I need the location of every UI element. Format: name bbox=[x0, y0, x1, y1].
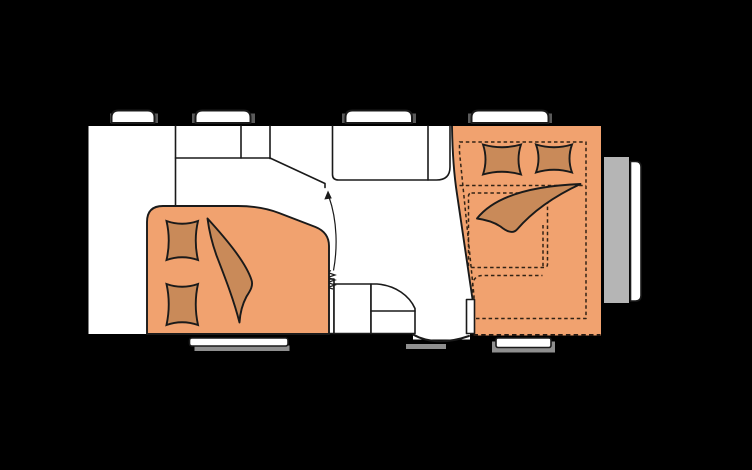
window-pane bbox=[472, 111, 549, 124]
window-pane bbox=[346, 111, 413, 124]
pillow bbox=[536, 145, 572, 173]
window-pane bbox=[112, 111, 155, 124]
window-bottom-front bbox=[492, 338, 555, 353]
door-step-shadow bbox=[406, 344, 446, 349]
window-pane bbox=[196, 111, 251, 124]
washroom-cabinet bbox=[334, 284, 371, 334]
pillow bbox=[167, 221, 199, 260]
pillow bbox=[167, 284, 199, 325]
front-bumper bbox=[631, 162, 642, 302]
window-top-4 bbox=[468, 111, 552, 124]
window-pane bbox=[496, 338, 551, 348]
window-top-2 bbox=[192, 111, 255, 124]
floorplan-svg bbox=[0, 0, 752, 470]
french-bed-rear bbox=[147, 206, 329, 334]
window-top-3 bbox=[342, 111, 416, 124]
front-storage-panel bbox=[604, 157, 629, 303]
window-top-1 bbox=[110, 111, 158, 124]
window-pane bbox=[190, 338, 289, 346]
window-bottom-rear bbox=[190, 338, 290, 351]
pillow bbox=[483, 145, 521, 175]
partition-wall bbox=[467, 300, 475, 334]
caravan-floorplan-canvas bbox=[0, 0, 752, 470]
